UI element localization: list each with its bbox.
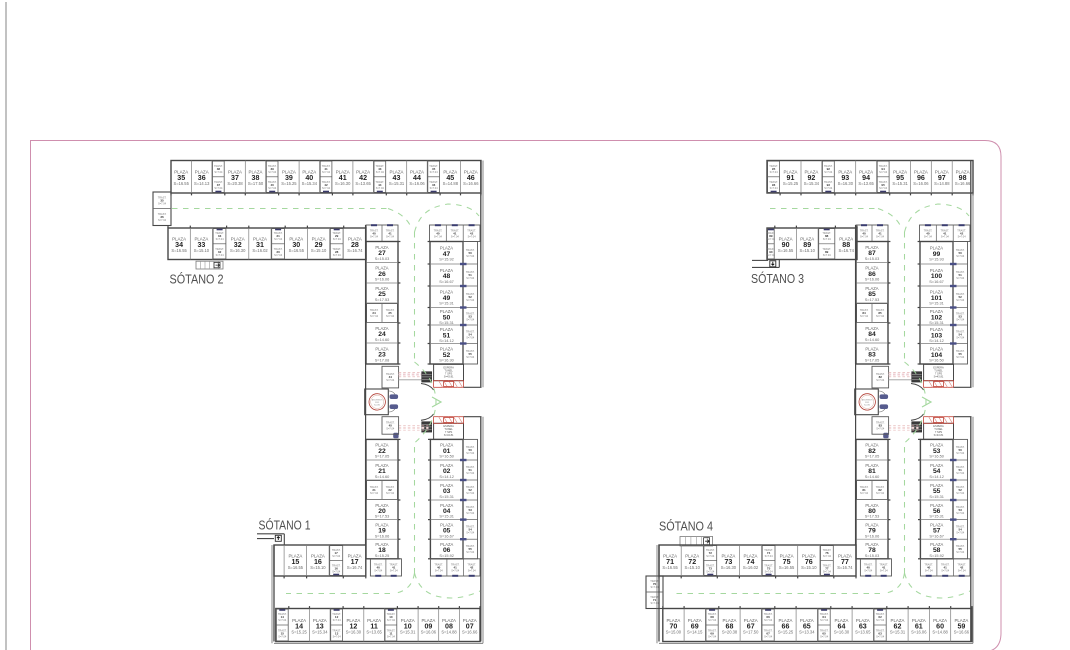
svg-text:S=20.38: S=20.38 [722, 629, 738, 634]
svg-text:S=17.53: S=17.53 [865, 514, 880, 519]
svg-text:S=7.04: S=7.04 [466, 336, 475, 339]
svg-text:S=14.88: S=14.88 [441, 629, 457, 634]
svg-text:S=16.50: S=16.50 [439, 454, 454, 459]
svg-text:S=7.04: S=7.04 [274, 238, 283, 241]
svg-text:S=7.04: S=7.04 [278, 619, 287, 622]
svg-text:S=14.60: S=14.60 [375, 474, 390, 479]
svg-text:S=14.88: S=14.88 [934, 181, 950, 186]
svg-text:S=16.66: S=16.66 [463, 181, 479, 186]
svg-text:S=7.04: S=7.04 [876, 428, 885, 431]
svg-text:S=3.81: S=3.81 [864, 405, 870, 407]
svg-text:S=16.30: S=16.30 [721, 565, 737, 570]
svg-text:S=16.02: S=16.02 [743, 565, 759, 570]
svg-text:S=15.31: S=15.31 [389, 181, 405, 186]
svg-text:S=7.04: S=7.04 [876, 315, 885, 318]
svg-text:S=7.04: S=7.04 [956, 255, 965, 258]
svg-text:S=16.06: S=16.06 [865, 277, 880, 282]
svg-text:S=7.04: S=7.04 [386, 492, 395, 495]
svg-text:S=15.10: S=15.10 [801, 565, 817, 570]
svg-text:S=16.30: S=16.30 [230, 248, 246, 253]
svg-text:S=7.04: S=7.04 [333, 238, 342, 241]
svg-text:S=16.55: S=16.55 [288, 565, 304, 570]
svg-text:S=7.04: S=7.04 [216, 254, 225, 257]
svg-text:S=7.04: S=7.04 [651, 586, 660, 589]
svg-text:S=7.04: S=7.04 [386, 428, 395, 431]
svg-text:S=15.10: S=15.10 [194, 248, 210, 253]
svg-text:S=16.06: S=16.06 [865, 533, 880, 538]
svg-text:S=7.04: S=7.04 [765, 571, 774, 574]
svg-text:S=16.55: S=16.55 [779, 565, 795, 570]
svg-text:S=15.31: S=15.31 [439, 514, 454, 519]
svg-text:S=7.04: S=7.04 [332, 571, 341, 574]
svg-text:S=7.04: S=7.04 [268, 171, 277, 174]
svg-text:SÓTANO 4: SÓTANO 4 [659, 519, 713, 534]
svg-text:S=7.04: S=7.04 [216, 238, 225, 241]
svg-text:S=7.04: S=7.04 [332, 555, 341, 558]
svg-text:S=16.67: S=16.67 [439, 279, 454, 284]
svg-text:S=14.88: S=14.88 [932, 629, 948, 634]
svg-text:S=7.04: S=7.04 [466, 551, 475, 554]
svg-text:S=15.34: S=15.34 [312, 629, 328, 634]
svg-text:S=7.04: S=7.04 [860, 235, 869, 238]
svg-text:S=15.31: S=15.31 [439, 301, 454, 306]
svg-text:S=16.30: S=16.30 [834, 629, 850, 634]
svg-text:S=7.04: S=7.04 [876, 235, 885, 238]
svg-text:SÓTANO 1: SÓTANO 1 [259, 518, 311, 533]
svg-text:S=7.04: S=7.04 [466, 512, 475, 515]
svg-text:S=17.53: S=17.53 [375, 514, 390, 519]
svg-text:S=7.04: S=7.04 [860, 315, 869, 318]
svg-text:S=7.04: S=7.04 [333, 619, 342, 622]
svg-text:PLAZA: PLAZA [375, 266, 388, 271]
svg-text:S=17.05: S=17.05 [865, 454, 880, 459]
svg-text:S=7.04: S=7.04 [956, 492, 965, 495]
svg-text:S=7.04: S=7.04 [333, 636, 342, 639]
svg-text:S=16.55: S=16.55 [289, 248, 305, 253]
svg-text:S=7.04: S=7.04 [824, 187, 833, 190]
svg-text:PLAZA: PLAZA [930, 290, 943, 295]
svg-text:S=7.04: S=7.04 [651, 602, 660, 605]
svg-text:S=14.12: S=14.12 [439, 474, 454, 479]
svg-text:S=7.04: S=7.04 [956, 512, 965, 515]
svg-text:S=7.04: S=7.04 [708, 636, 717, 639]
svg-text:S=7.04: S=7.04 [860, 492, 869, 495]
svg-text:S=13.65: S=13.65 [858, 181, 874, 186]
svg-text:S=15.34: S=15.34 [804, 181, 820, 186]
svg-text:S=7.04: S=7.04 [823, 571, 832, 574]
svg-text:S=17.05: S=17.05 [865, 357, 880, 362]
svg-text:S=7.04: S=7.04 [390, 570, 399, 573]
svg-text:PLAZA: PLAZA [930, 246, 943, 251]
svg-text:S=16.66: S=16.66 [954, 629, 970, 634]
svg-text:S=13.34: S=13.34 [799, 629, 815, 634]
svg-text:S=15.03: S=15.03 [865, 553, 880, 558]
svg-text:PLAZA: PLAZA [930, 347, 943, 352]
svg-text:S=7.04: S=7.04 [956, 277, 965, 280]
svg-text:S=7.04: S=7.04 [956, 472, 965, 475]
svg-text:S=13.65: S=13.65 [366, 629, 382, 634]
svg-text:S=7.04: S=7.04 [466, 532, 475, 535]
svg-text:S=16.67: S=16.67 [439, 533, 454, 538]
svg-text:ASCENSOR: ASCENSOR [372, 398, 383, 401]
svg-text:S=7.04: S=7.04 [466, 299, 475, 302]
svg-text:S=7.04: S=7.04 [958, 235, 967, 238]
svg-text:S=14.13: S=14.13 [194, 181, 210, 186]
svg-text:S=7.04: S=7.04 [466, 356, 475, 359]
svg-text:S=14.88: S=14.88 [443, 181, 459, 186]
svg-text:S=16.67: S=16.67 [929, 279, 944, 284]
svg-text:PLAZA: PLAZA [440, 347, 453, 352]
svg-text:S=15.31: S=15.31 [892, 181, 908, 186]
svg-text:S=7.04: S=7.04 [823, 254, 832, 257]
svg-text:S=7.04: S=7.04 [466, 492, 475, 495]
svg-text:SÓTANO 3: SÓTANO 3 [751, 271, 804, 286]
svg-text:S=16.55: S=16.55 [662, 565, 678, 570]
svg-text:S=3.81: S=3.81 [374, 405, 380, 407]
svg-text:S=15.03: S=15.03 [865, 256, 880, 261]
svg-text:S=16.06: S=16.06 [913, 181, 929, 186]
svg-text:S=16.02: S=16.02 [252, 248, 268, 253]
svg-text:S=16.06: S=16.06 [911, 629, 927, 634]
svg-text:S=7.04: S=7.04 [386, 379, 395, 382]
svg-text:S=15.31: S=15.31 [400, 629, 416, 634]
svg-text:S=7.04: S=7.04 [158, 203, 167, 206]
svg-text:S=15.93: S=15.93 [929, 257, 944, 262]
svg-text:S=15.92: S=15.92 [439, 257, 454, 262]
svg-text:S=16.50: S=16.50 [929, 454, 944, 459]
svg-text:S=15.31: S=15.31 [929, 514, 944, 519]
svg-text:S=7.04: S=7.04 [386, 235, 395, 238]
svg-text:S=17.53: S=17.53 [375, 297, 390, 302]
svg-text:S=16.55: S=16.55 [778, 248, 794, 253]
svg-text:S=7.04: S=7.04 [268, 187, 277, 190]
svg-text:Nº01: Nº01 [865, 401, 869, 404]
svg-text:S=7.04: S=7.04 [370, 235, 379, 238]
svg-text:S=43.81: S=43.81 [934, 374, 944, 378]
svg-text:S=15.25: S=15.25 [783, 181, 799, 186]
svg-text:S=15.10: S=15.10 [685, 565, 701, 570]
svg-text:S=7.04: S=7.04 [820, 619, 829, 622]
svg-text:PLAZA: PLAZA [440, 309, 453, 314]
svg-text:S=15.31: S=15.31 [929, 320, 944, 325]
svg-text:S=7.04: S=7.04 [879, 187, 888, 190]
svg-text:S=7.04: S=7.04 [278, 636, 287, 639]
svg-text:S=7.04: S=7.04 [770, 171, 779, 174]
svg-text:S=7.04: S=7.04 [386, 315, 395, 318]
svg-text:S=7.04: S=7.04 [770, 187, 779, 190]
svg-text:PLAZA: PLAZA [930, 309, 943, 314]
svg-text:S=16.66: S=16.66 [955, 181, 971, 186]
svg-text:S=7.04: S=7.04 [823, 555, 832, 558]
svg-text:S=16.50: S=16.50 [929, 358, 944, 363]
svg-text:S=16.06: S=16.06 [421, 629, 437, 634]
svg-text:S=17.50: S=17.50 [248, 181, 264, 186]
svg-text:S=15.31: S=15.31 [890, 629, 906, 634]
svg-text:S=7.04: S=7.04 [956, 336, 965, 339]
svg-text:PLAZA: PLAZA [865, 266, 878, 271]
svg-text:S=16.06: S=16.06 [375, 277, 390, 282]
svg-text:S=16.06: S=16.06 [409, 181, 425, 186]
svg-text:S=16.55: S=16.55 [171, 248, 187, 253]
svg-text:S=7.04: S=7.04 [376, 187, 385, 190]
svg-text:S=7.04: S=7.04 [322, 171, 331, 174]
svg-text:ASCENSOR: ASCENSOR [862, 398, 873, 401]
svg-text:S=16.30: S=16.30 [439, 358, 454, 363]
svg-text:S=7.04: S=7.04 [387, 636, 396, 639]
svg-text:S=7.04: S=7.04 [466, 472, 475, 475]
svg-text:S=7.04: S=7.04 [876, 636, 885, 639]
svg-text:S=7.04: S=7.04 [370, 315, 379, 318]
svg-text:S=7.04: S=7.04 [434, 235, 443, 238]
svg-text:S=14.12: S=14.12 [929, 474, 944, 479]
svg-text:S=7.04: S=7.04 [374, 570, 383, 573]
svg-text:S=15.31: S=15.31 [929, 301, 944, 306]
svg-text:S=15.25: S=15.25 [281, 181, 297, 186]
svg-text:S=15.92: S=15.92 [929, 553, 944, 558]
svg-text:S=14.15: S=14.15 [687, 629, 703, 634]
svg-text:S=16.55: S=16.55 [174, 181, 190, 186]
svg-text:S=14.12: S=14.12 [439, 338, 454, 343]
svg-text:S=7.04: S=7.04 [956, 551, 965, 554]
svg-text:S=15.25: S=15.25 [375, 553, 390, 558]
svg-text:S=7.04: S=7.04 [466, 318, 475, 321]
svg-text:S=7.04: S=7.04 [941, 570, 950, 573]
svg-text:S=7.04: S=7.04 [430, 171, 439, 174]
svg-text:S=7.04: S=7.04 [956, 532, 965, 535]
svg-text:S=16.74: S=16.74 [837, 565, 853, 570]
svg-text:S=15.34: S=15.34 [302, 181, 318, 186]
svg-text:S=16.30: S=16.30 [838, 181, 854, 186]
svg-text:S=7.04: S=7.04 [956, 452, 965, 455]
svg-text:S=7.04: S=7.04 [876, 379, 885, 382]
svg-text:S=16.30: S=16.30 [335, 181, 351, 186]
svg-text:S=7.04: S=7.04 [466, 277, 475, 280]
svg-text:S=15.31: S=15.31 [929, 494, 944, 499]
svg-text:S=7.04: S=7.04 [767, 254, 776, 257]
svg-text:S=15.03: S=15.03 [375, 256, 390, 261]
svg-text:S=7.04: S=7.04 [823, 238, 832, 241]
svg-text:S=7.04: S=7.04 [820, 636, 829, 639]
svg-text:S=7.04: S=7.04 [435, 570, 444, 573]
svg-text:S=7.04: S=7.04 [708, 619, 717, 622]
svg-text:S=16.74: S=16.74 [839, 248, 855, 253]
svg-text:S=7.04: S=7.04 [451, 235, 460, 238]
svg-text:S=15.31: S=15.31 [439, 320, 454, 325]
svg-text:S=17.08: S=17.08 [375, 357, 390, 362]
svg-text:S=7.04: S=7.04 [765, 555, 774, 558]
svg-text:S=7.04: S=7.04 [824, 171, 833, 174]
svg-text:S=7.04: S=7.04 [214, 187, 223, 190]
svg-text:S=13.65: S=13.65 [355, 181, 371, 186]
svg-text:S=43.81: S=43.81 [934, 433, 944, 437]
svg-text:S=7.04: S=7.04 [430, 187, 439, 190]
svg-text:S=7.04: S=7.04 [451, 570, 460, 573]
svg-text:S=43.81: S=43.81 [444, 433, 454, 437]
svg-text:S=7.04: S=7.04 [864, 570, 873, 573]
svg-text:S=17.50: S=17.50 [743, 629, 759, 634]
svg-text:S=7.04: S=7.04 [941, 235, 950, 238]
svg-text:S=16.74: S=16.74 [347, 248, 363, 253]
svg-text:S=7.04: S=7.04 [764, 619, 773, 622]
svg-text:S=17.53: S=17.53 [865, 297, 880, 302]
svg-text:S=15.10: S=15.10 [311, 248, 327, 253]
svg-text:S=20.38: S=20.38 [227, 181, 243, 186]
svg-text:S=16.67: S=16.67 [929, 533, 944, 538]
svg-text:S=7.04: S=7.04 [706, 555, 715, 558]
svg-text:S=15.10: S=15.10 [310, 565, 326, 570]
svg-text:PLAZA: PLAZA [440, 246, 453, 251]
svg-text:S=7.04: S=7.04 [466, 452, 475, 455]
svg-text:S=7.04: S=7.04 [956, 318, 965, 321]
svg-text:S=7.04: S=7.04 [322, 187, 331, 190]
svg-text:S=13.65: S=13.65 [855, 629, 871, 634]
svg-text:S=7.04: S=7.04 [880, 570, 889, 573]
svg-text:S=7.04: S=7.04 [958, 570, 967, 573]
svg-text:S=15.10: S=15.10 [800, 248, 816, 253]
svg-text:PLAZA: PLAZA [930, 327, 943, 332]
svg-text:S=7.04: S=7.04 [370, 492, 379, 495]
svg-text:S=7.04: S=7.04 [956, 299, 965, 302]
svg-text:S=7.04: S=7.04 [468, 570, 477, 573]
svg-text:S=7.04: S=7.04 [924, 235, 933, 238]
svg-text:S=16.30: S=16.30 [346, 629, 362, 634]
svg-text:S=14.12: S=14.12 [929, 338, 944, 343]
svg-text:S=7.04: S=7.04 [333, 254, 342, 257]
svg-text:S=7.04: S=7.04 [466, 255, 475, 258]
svg-text:S=7.04: S=7.04 [274, 254, 283, 257]
svg-text:S=7.04: S=7.04 [879, 171, 888, 174]
svg-text:S=7.04: S=7.04 [767, 238, 776, 241]
svg-text:S=17.05: S=17.05 [375, 454, 390, 459]
svg-text:S=15.25: S=15.25 [778, 629, 794, 634]
svg-text:S=15.92: S=15.92 [439, 553, 454, 558]
svg-text:S=15.25: S=15.25 [291, 629, 307, 634]
svg-text:S=14.60: S=14.60 [865, 474, 880, 479]
svg-text:PLAZA: PLAZA [440, 290, 453, 295]
svg-text:S=7.04: S=7.04 [214, 171, 223, 174]
svg-text:S=16.06: S=16.06 [375, 533, 390, 538]
svg-text:S=7.04: S=7.04 [764, 636, 773, 639]
svg-text:PLAZA: PLAZA [440, 327, 453, 332]
svg-text:Nº01: Nº01 [375, 401, 379, 404]
svg-text:S=7.04: S=7.04 [876, 492, 885, 495]
svg-text:S=14.60: S=14.60 [375, 337, 390, 342]
svg-text:S=7.04: S=7.04 [376, 171, 385, 174]
svg-text:S=7.04: S=7.04 [706, 571, 715, 574]
svg-text:S=7.04: S=7.04 [158, 219, 167, 222]
svg-text:S=7.04: S=7.04 [876, 619, 885, 622]
svg-text:S=14.60: S=14.60 [865, 337, 880, 342]
svg-text:S=15.31: S=15.31 [439, 494, 454, 499]
svg-text:S=7.04: S=7.04 [956, 356, 965, 359]
svg-text:S=7.04: S=7.04 [468, 235, 477, 238]
svg-text:S=16.66: S=16.66 [462, 629, 478, 634]
svg-text:S=7.04: S=7.04 [387, 619, 396, 622]
svg-text:SÓTANO 2: SÓTANO 2 [170, 272, 224, 287]
svg-text:S=15.00: S=15.00 [666, 629, 682, 634]
svg-text:S=43.81: S=43.81 [444, 374, 454, 378]
svg-text:S=7.04: S=7.04 [925, 570, 934, 573]
svg-text:S=16.74: S=16.74 [347, 565, 363, 570]
